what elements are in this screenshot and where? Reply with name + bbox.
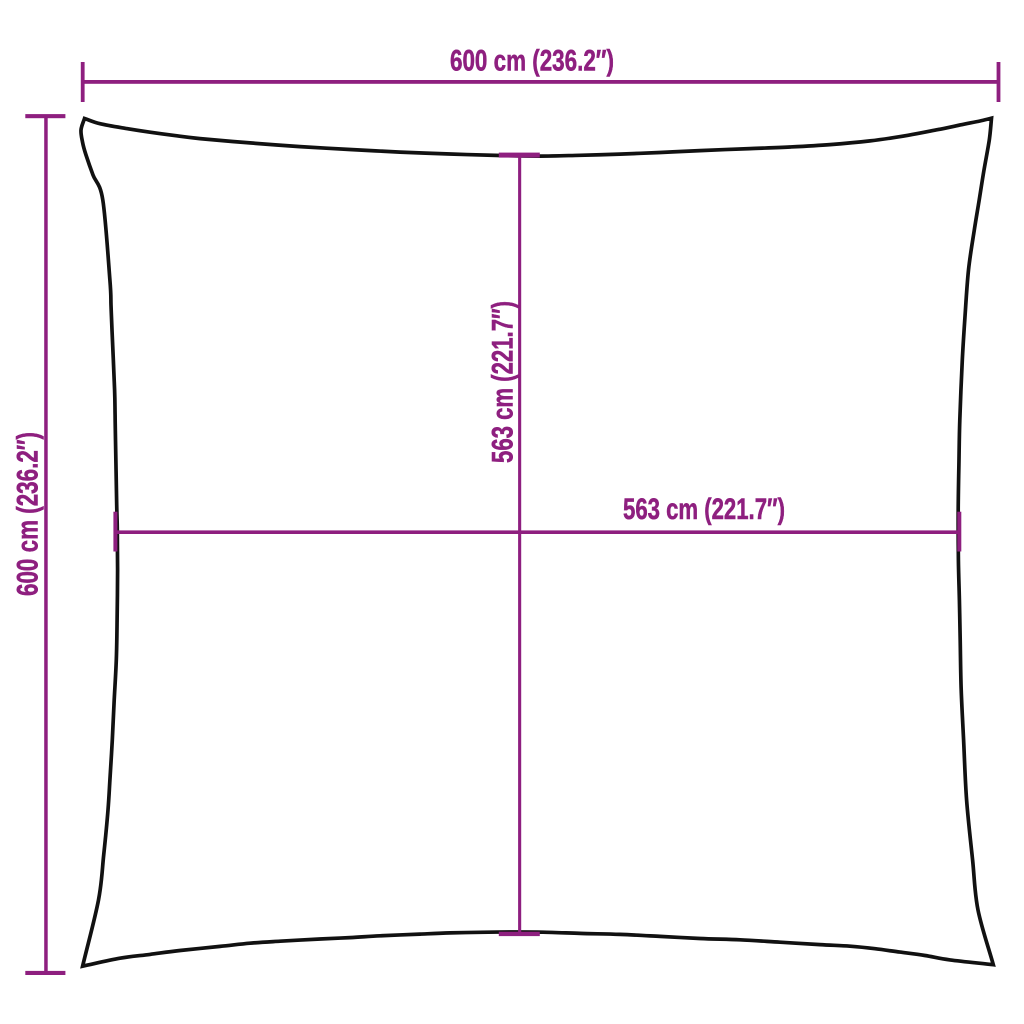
svg-text:563 cm (221.7″): 563 cm (221.7″) <box>486 301 519 463</box>
svg-text:563 cm (221.7″): 563 cm (221.7″) <box>623 493 785 526</box>
svg-text:600 cm (236.2″): 600 cm (236.2″) <box>450 44 614 77</box>
svg-text:600 cm (236.2″): 600 cm (236.2″) <box>12 432 45 596</box>
